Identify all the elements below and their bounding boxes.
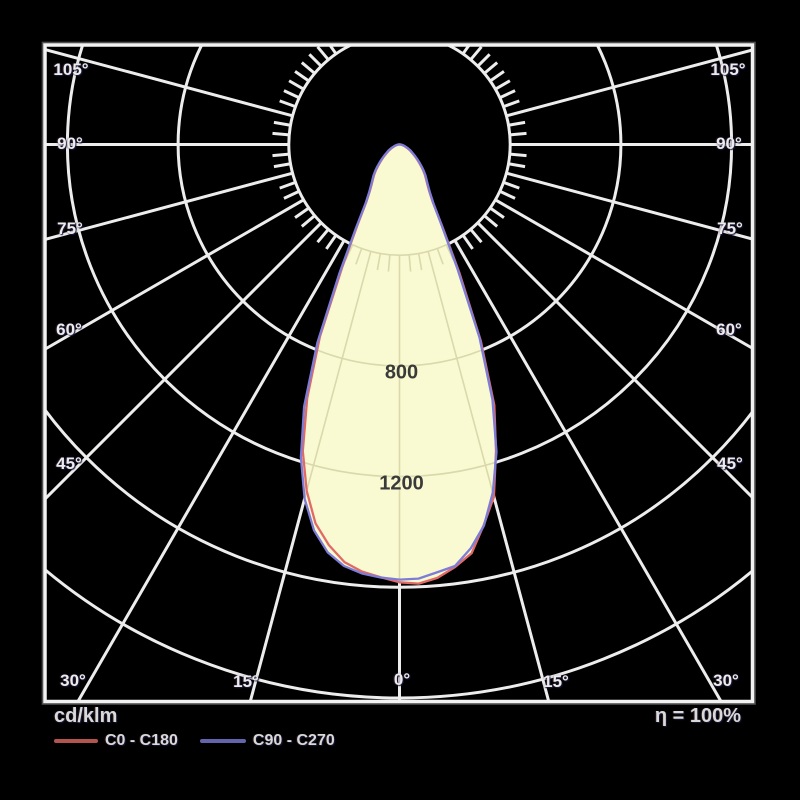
grid-tick xyxy=(490,208,504,218)
grid-tick xyxy=(274,164,291,167)
grid-tick xyxy=(500,191,515,198)
grid-tick xyxy=(326,235,336,249)
grid-tick xyxy=(289,81,304,89)
polar-chart xyxy=(0,0,800,800)
grid-tick xyxy=(280,182,296,188)
grid-tick xyxy=(295,208,309,218)
units-label: cd/klm xyxy=(54,705,117,728)
grid-radial-line-105 xyxy=(506,0,800,116)
grid-tick xyxy=(302,63,315,74)
photometric-diagram: 105°105°90°90°75°75°60°60°45°45°30°30°15… xyxy=(0,0,800,800)
grid-tick xyxy=(284,191,299,198)
grid-radial-line--45 xyxy=(0,223,321,725)
legend-label-c0-c180: C0 - C180 xyxy=(105,732,178,750)
grid-tick xyxy=(284,91,299,98)
grid-tick xyxy=(274,122,291,125)
grid-tick xyxy=(280,101,296,107)
grid-tick xyxy=(463,235,473,249)
grid-tick xyxy=(318,229,329,242)
grid-tick xyxy=(504,101,520,107)
legend-label-c90-c270: C90 - C270 xyxy=(253,732,335,750)
grid-tick xyxy=(510,133,527,134)
grid-radial-line--45 xyxy=(0,223,321,725)
grid-tick xyxy=(484,216,497,227)
grid-tick xyxy=(509,164,526,167)
grid-radial-line-30 xyxy=(455,240,800,800)
grid-radial-line--30 xyxy=(0,240,344,800)
grid-tick xyxy=(295,71,309,81)
legend-swatch-c0-c180 xyxy=(54,739,98,743)
grid-tick xyxy=(272,154,289,155)
grid-tick xyxy=(509,122,526,125)
grid-tick xyxy=(504,182,520,188)
grid-tick xyxy=(484,63,497,74)
grid-tick xyxy=(478,54,490,66)
grid-tick xyxy=(510,154,527,155)
grid-tick xyxy=(471,229,482,242)
grid-tick xyxy=(302,216,315,227)
grid-radial-line-30 xyxy=(455,240,800,800)
legend-swatch-c90-c270 xyxy=(200,739,246,743)
grid-tick xyxy=(318,47,329,60)
grid-radial-line-75 xyxy=(506,173,800,357)
grid-tick xyxy=(490,71,504,81)
efficiency-label: η = 100% xyxy=(655,705,741,728)
grid-radial-line--30 xyxy=(0,240,344,800)
grid-tick xyxy=(500,91,515,98)
grid-radial-line-105 xyxy=(506,0,800,116)
grid-tick xyxy=(495,81,510,89)
legend: C0 - C180 C90 - C270 xyxy=(54,731,335,751)
grid-tick xyxy=(272,133,289,134)
grid-tick xyxy=(309,54,321,66)
grid-tick xyxy=(471,47,482,60)
grid-radial-line-75 xyxy=(506,173,800,357)
